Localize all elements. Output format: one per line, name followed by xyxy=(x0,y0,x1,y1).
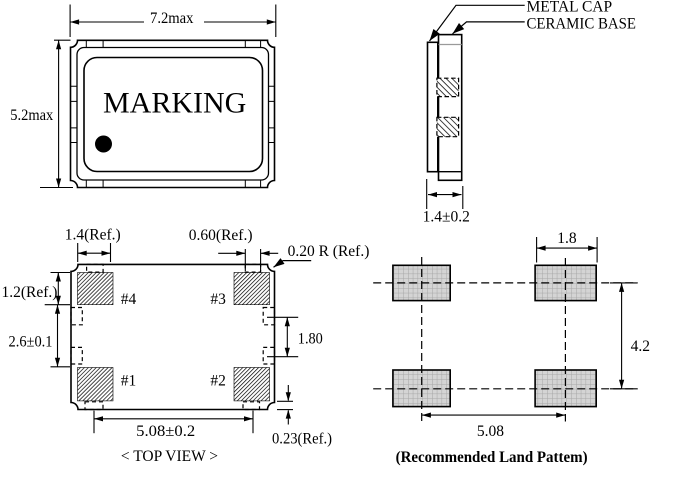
svg-text:CERAMIC BASE: CERAMIC BASE xyxy=(527,15,637,32)
svg-text:2.6±0.1: 2.6±0.1 xyxy=(9,334,53,351)
svg-text:METAL CAP: METAL CAP xyxy=(527,0,613,16)
svg-text:(Recommended Land Pattem): (Recommended Land Pattem) xyxy=(396,449,588,466)
svg-text:0.20 R (Ref.): 0.20 R (Ref.) xyxy=(288,243,370,260)
svg-text:4.2: 4.2 xyxy=(631,338,650,355)
svg-text:7.2max: 7.2max xyxy=(150,10,194,27)
svg-text:5.08: 5.08 xyxy=(477,423,504,440)
svg-text:5.08±0.2: 5.08±0.2 xyxy=(136,423,195,440)
svg-text:1.4±0.2: 1.4±0.2 xyxy=(423,209,470,226)
svg-text:5.2max: 5.2max xyxy=(10,107,53,124)
svg-text:#2: #2 xyxy=(210,373,226,390)
svg-text:MARKING: MARKING xyxy=(103,87,246,120)
svg-text:1.80: 1.80 xyxy=(298,331,323,348)
svg-text:1.2(Ref.): 1.2(Ref.) xyxy=(2,284,58,301)
svg-text:0.60(Ref.): 0.60(Ref.) xyxy=(189,227,253,244)
svg-text:0.23(Ref.): 0.23(Ref.) xyxy=(272,431,332,448)
svg-text:#4: #4 xyxy=(121,291,137,308)
svg-text:1.4(Ref.): 1.4(Ref.) xyxy=(65,227,121,244)
svg-text:#3: #3 xyxy=(210,291,226,308)
svg-text:#1: #1 xyxy=(121,373,137,390)
svg-text:< TOP VIEW >: < TOP VIEW > xyxy=(121,448,218,465)
svg-text:1.8: 1.8 xyxy=(557,230,577,247)
